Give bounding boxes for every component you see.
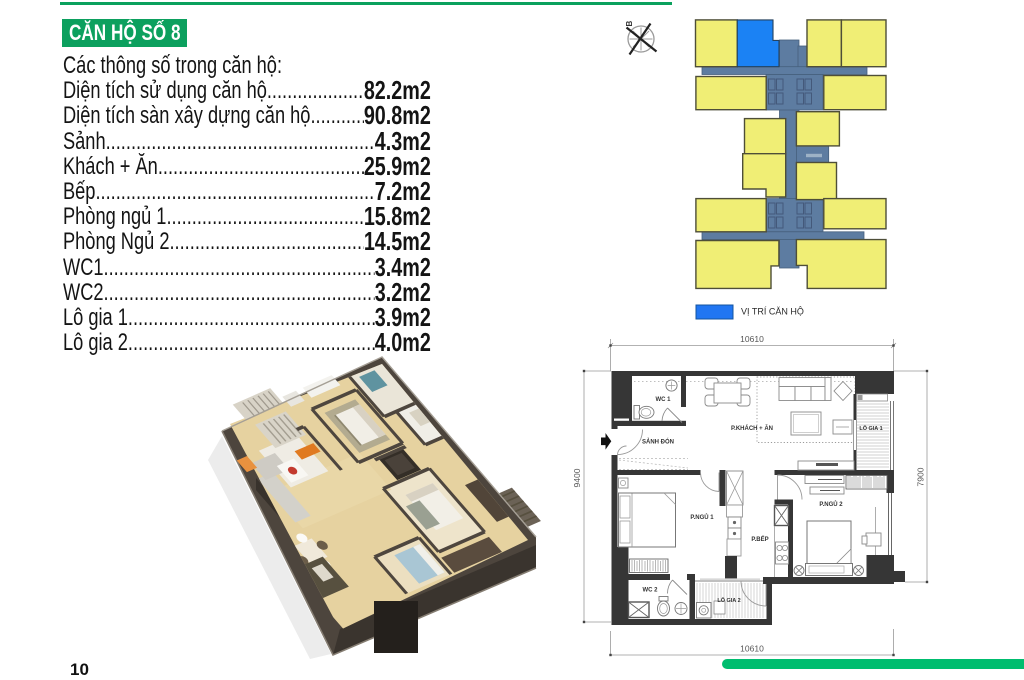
svg-text:P.BẾP: P.BẾP [751, 536, 768, 543]
svg-text:VỊ TRÍ CĂN HỘ: VỊ TRÍ CĂN HỘ [741, 307, 804, 317]
svg-text:P.NGỦ 1: P.NGỦ 1 [690, 514, 714, 521]
svg-text:9400: 9400 [572, 468, 582, 487]
svg-text:7900: 7900 [916, 467, 926, 486]
svg-text:WC 1: WC 1 [656, 397, 672, 403]
svg-text:10610: 10610 [740, 334, 764, 344]
svg-text:B: B [625, 21, 634, 27]
svg-text:P.NGỦ 2: P.NGỦ 2 [819, 501, 843, 508]
svg-text:10610: 10610 [740, 644, 764, 654]
svg-text:WC 2: WC 2 [643, 588, 659, 594]
svg-text:P.KHÁCH + ĂN: P.KHÁCH + ĂN [731, 425, 773, 432]
svg-text:SẢNH ĐÓN: SẢNH ĐÓN [642, 438, 674, 446]
svg-text:LÔ GIA 2: LÔ GIA 2 [717, 596, 740, 604]
svg-text:LÔ GIA 1: LÔ GIA 1 [859, 424, 882, 432]
